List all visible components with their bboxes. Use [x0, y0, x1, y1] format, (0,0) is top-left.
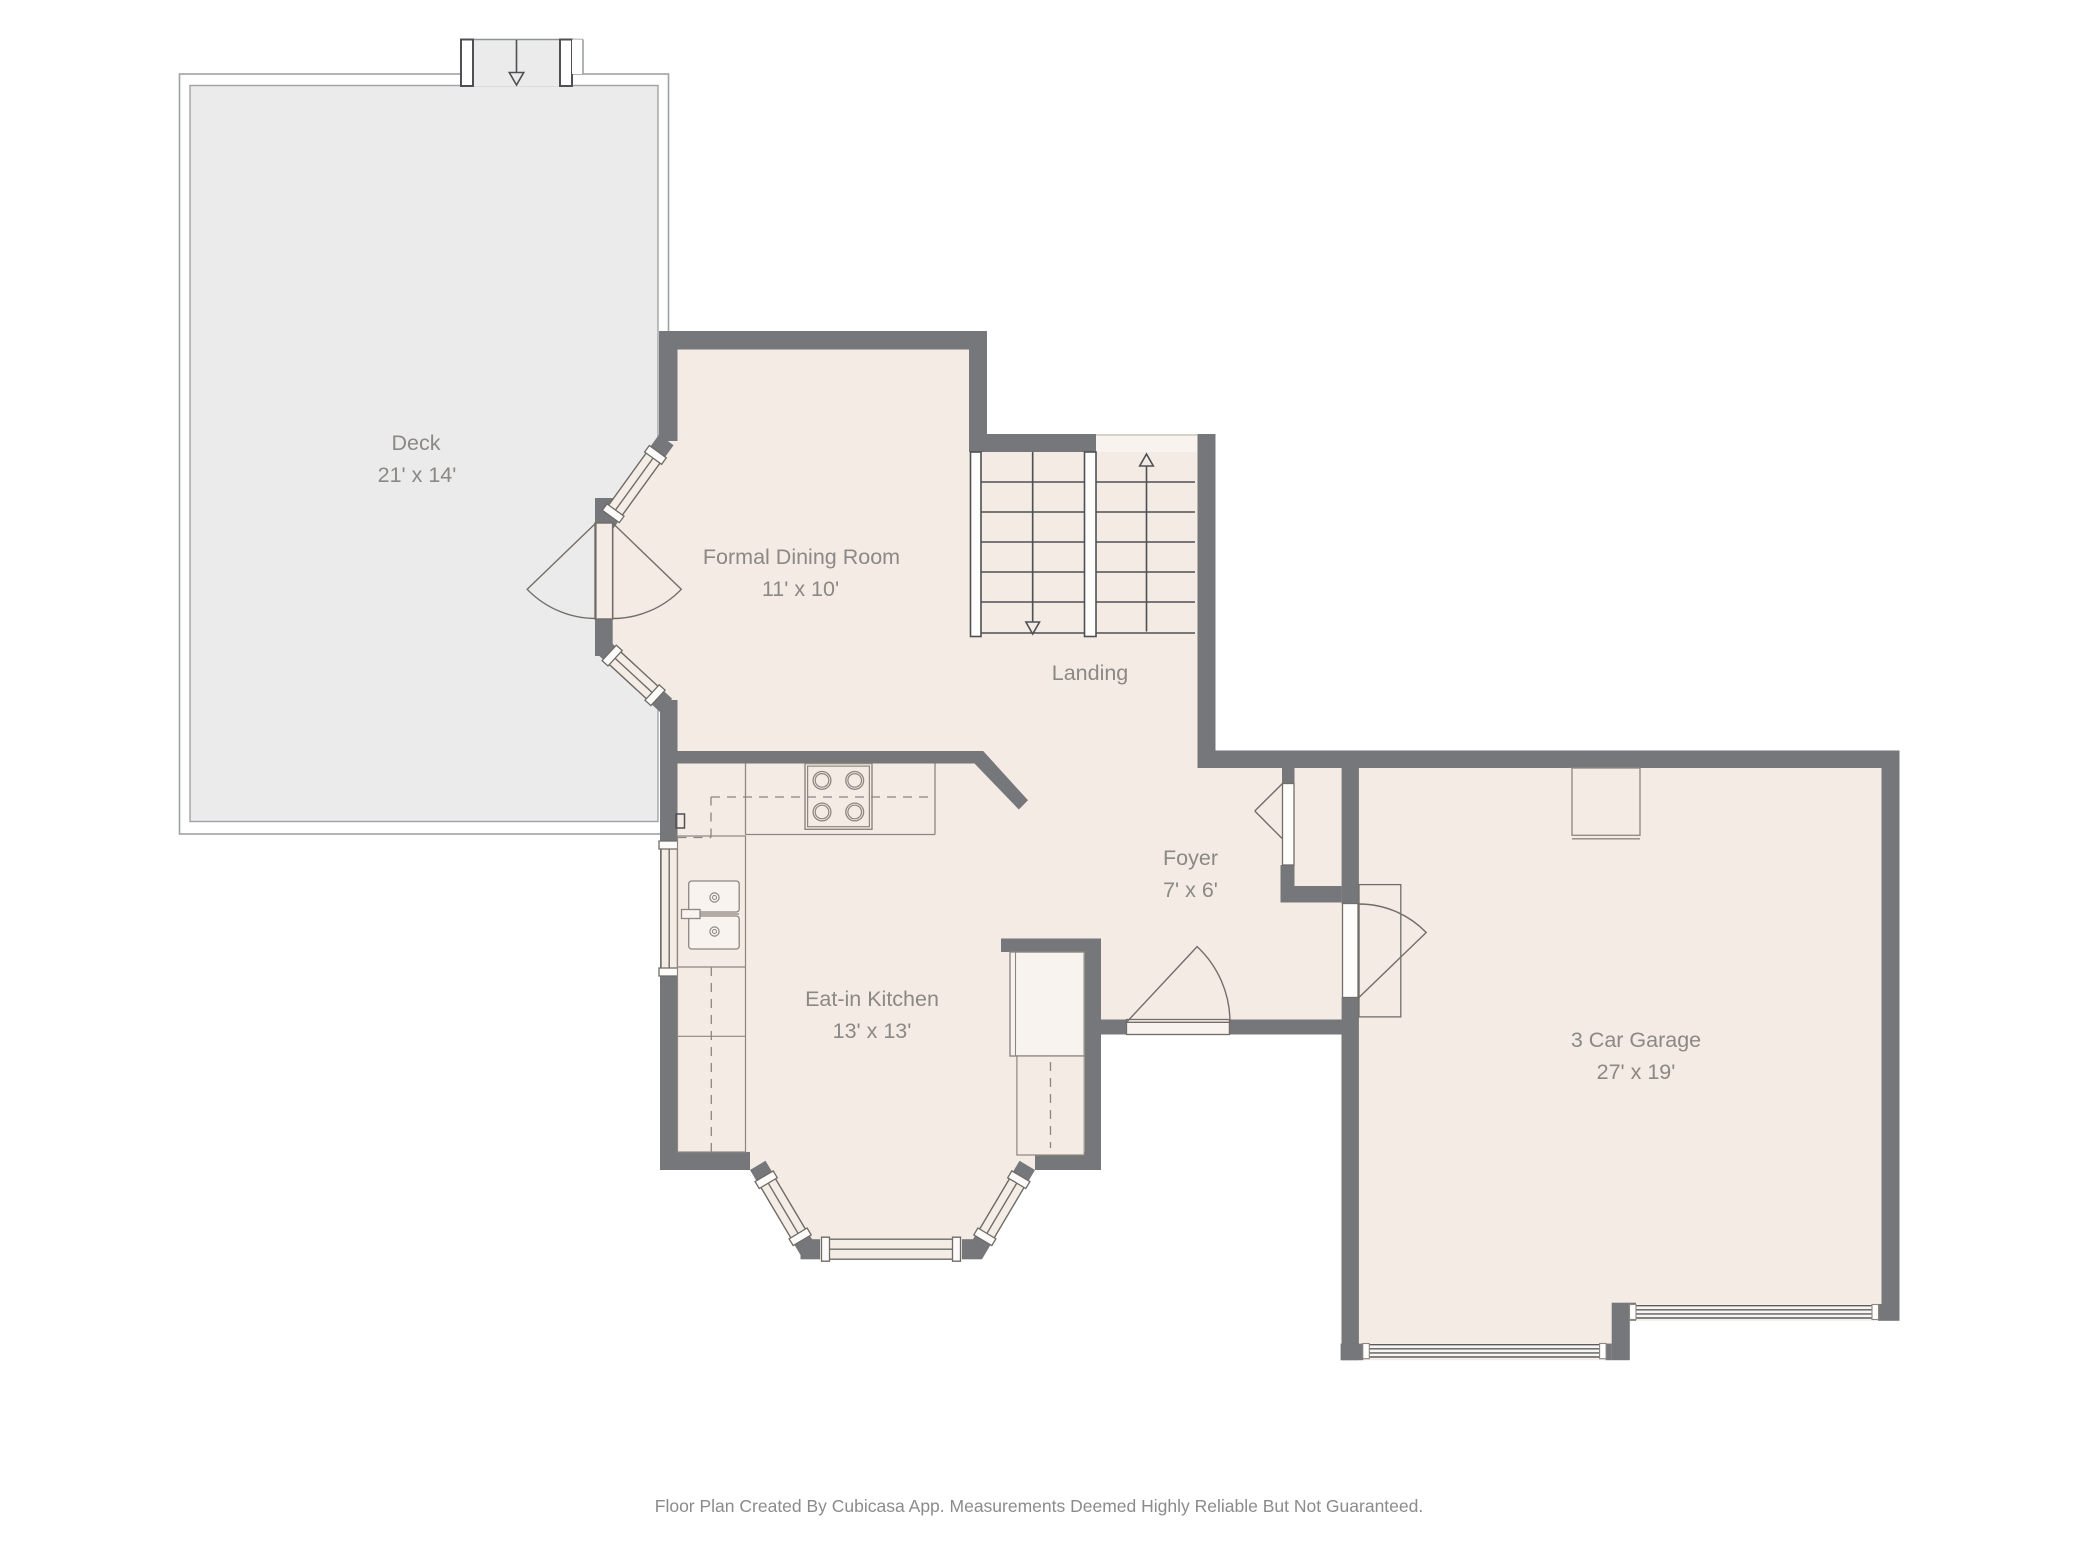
svg-text:Eat-in Kitchen: Eat-in Kitchen [805, 987, 939, 1011]
svg-text:Formal Dining Room: Formal Dining Room [703, 545, 900, 569]
svg-text:27' x 19': 27' x 19' [1597, 1060, 1676, 1084]
svg-text:Foyer: Foyer [1163, 846, 1218, 870]
svg-text:Landing: Landing [1052, 661, 1129, 685]
svg-text:21' x 14': 21' x 14' [378, 463, 457, 487]
svg-text:11' x 10': 11' x 10' [762, 577, 839, 601]
svg-text:Floor Plan Created By Cubicasa: Floor Plan Created By Cubicasa App. Meas… [655, 1496, 1423, 1516]
svg-text:3 Car Garage: 3 Car Garage [1571, 1028, 1701, 1052]
svg-text:7' x 6': 7' x 6' [1163, 878, 1218, 902]
svg-text:Deck: Deck [392, 431, 441, 455]
svg-text:13' x 13': 13' x 13' [833, 1019, 912, 1043]
